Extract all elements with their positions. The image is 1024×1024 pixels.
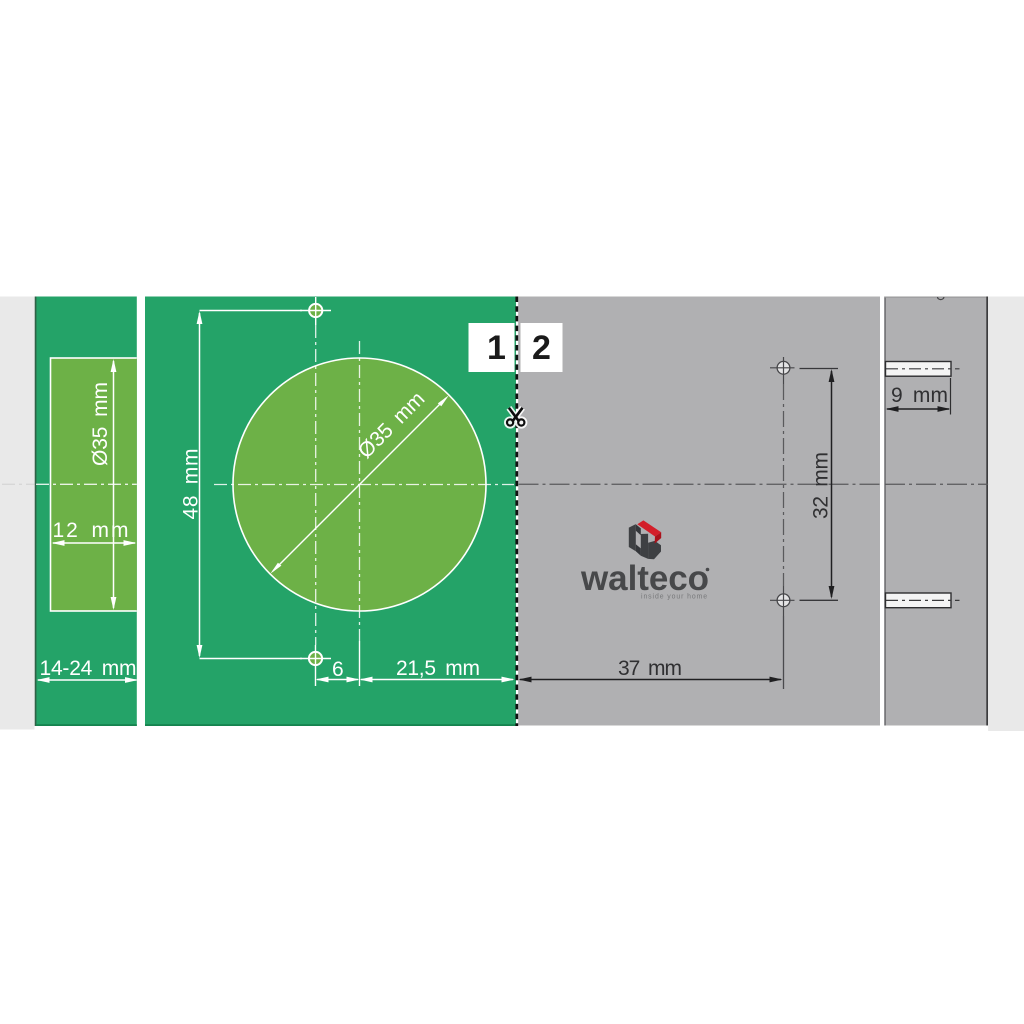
- svg-text:inside your home: inside your home: [641, 592, 708, 601]
- svg-text:Ø35 mm: Ø35 mm: [89, 382, 112, 466]
- svg-text:14-24 mm: 14-24 mm: [40, 657, 137, 680]
- svg-text:6: 6: [332, 658, 344, 681]
- svg-text:2: 2: [532, 329, 551, 367]
- svg-text:1: 1: [487, 329, 506, 367]
- svg-text:9 mm: 9 mm: [891, 384, 948, 407]
- svg-text:37 mm: 37 mm: [618, 657, 682, 680]
- svg-text:48 mm: 48 mm: [180, 449, 203, 520]
- svg-text:32 mm: 32 mm: [810, 452, 833, 519]
- svg-text:21,5 mm: 21,5 mm: [396, 657, 480, 680]
